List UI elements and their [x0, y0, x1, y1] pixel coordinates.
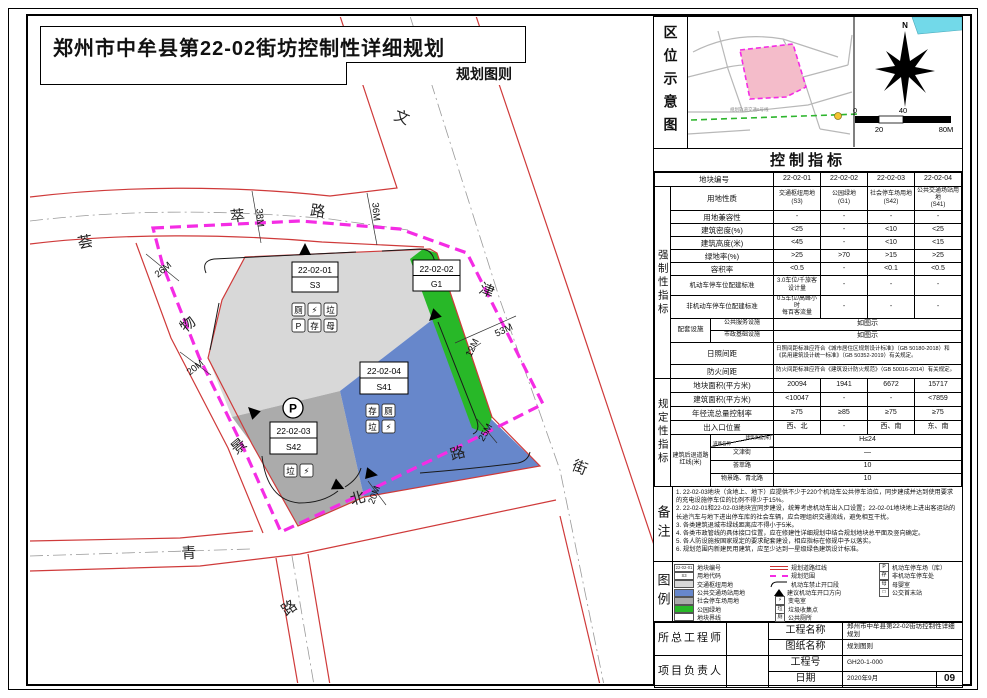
- note-item: 4. 各类市政管线的具体接口位置，应在修建性详细规划中结合规划地块总平面及竖向确…: [676, 530, 959, 538]
- notes-body: 1. 22-02-03地块（含地上、地下）应提供不少于220个机动车公共停车泊位…: [673, 487, 962, 561]
- legend-column: 规划道路红线规划范围机动车禁止开口段建议机动车开口方向⚡变电室垃垃圾收集点厕公共…: [770, 564, 874, 620]
- compass-north-label: N: [902, 21, 908, 30]
- legend-item: 22-02-01地块编号: [674, 564, 770, 572]
- indicator-cell: 出入口位置: [671, 420, 774, 434]
- sheet-number: 09: [937, 671, 963, 687]
- indicator-cell: 社会停车场用地 (S42): [868, 187, 915, 211]
- legend-glyph-icon: 母: [881, 581, 886, 587]
- legend-item: ⚡变电室: [770, 597, 874, 605]
- legend-swatch-mdash-icon: [770, 575, 788, 577]
- indicator-cell: 10: [774, 473, 962, 486]
- chief-engineer-signature: [727, 623, 769, 656]
- site-plan-map: 22-02-01 S3 22-02-02 G1 22-02-04 S41 22-…: [29, 17, 653, 683]
- indicator-cell: 机动车停车位配建标准: [671, 276, 774, 296]
- indicator-cell: -: [868, 392, 915, 406]
- indicator-cell: 规定性指标: [655, 378, 671, 486]
- indicator-cell: -: [868, 296, 915, 319]
- indicator-cell: 防火间距: [671, 364, 774, 378]
- indicator-cell: 地块面积(平方米): [671, 378, 774, 392]
- project-manager-signature: [727, 655, 769, 687]
- facility-icon: 存: [368, 406, 377, 416]
- parcel-id: 22-02-04: [367, 366, 401, 376]
- svg-text:路: 路: [309, 202, 326, 221]
- facility-icon: 垃: [368, 422, 377, 432]
- legend-section: 图例 22-02-01地块编号S3用地代码交通枢纽用地公共交通场站用地社会停车场…: [653, 561, 963, 623]
- indicator-cell: -: [821, 224, 868, 237]
- indicator-cell: 配套设施: [671, 318, 711, 342]
- note-item: 3. 各类建筑退城市绿线距离应不得小于5米。: [676, 522, 959, 530]
- drawing-title-box: 郑州市中牟县第22-02街坊控制性详细规划 规划图则: [40, 26, 526, 85]
- indicator-cell: -: [915, 296, 962, 319]
- svg-text:P: P: [289, 402, 297, 416]
- indicator-cell: 1941: [821, 378, 868, 392]
- project-no-label: 工程号: [769, 655, 843, 671]
- svg-text:街: 街: [570, 457, 590, 478]
- indicator-cell: —: [774, 447, 962, 460]
- indicator-cell: 西、北: [774, 420, 821, 434]
- notes-title: 备注: [654, 487, 673, 561]
- indicator-cell: 日照间距标准应符合《城市居住区规划设计标准》（GB 50180-2018）和《民…: [774, 342, 962, 364]
- indicator-cell: >25: [774, 250, 821, 263]
- svg-text:38M: 38M: [253, 208, 266, 227]
- facility-icon: 存: [310, 321, 319, 331]
- indicator-cell: 22-02-04: [915, 173, 962, 187]
- legend-glyph-icon: 垃: [777, 606, 782, 612]
- indicator-cell: 地块编号: [655, 173, 774, 187]
- indicator-cell: 3.0车位/千旅客 设计量: [774, 276, 821, 296]
- svg-text:40: 40: [899, 106, 907, 115]
- indicator-cell: <45: [774, 237, 821, 250]
- indicator-cell: -: [915, 276, 962, 296]
- legend-swatch-glyph-icon: 厕: [775, 613, 785, 622]
- indicator-cell: 22-02-03: [868, 173, 915, 187]
- facility-icon: 垃: [326, 305, 335, 315]
- legend-swatch-text: 22-02-01: [676, 565, 693, 570]
- svg-text:青: 青: [181, 545, 197, 563]
- facility-icon: 母: [326, 321, 335, 331]
- indicator-cell: >15: [868, 250, 915, 263]
- note-item: 1. 22-02-03地块（含地上、地下）应提供不少于220个机动车公共停车泊位…: [676, 489, 959, 505]
- legend-swatch-fill: [674, 580, 694, 588]
- facility-icon: P: [296, 321, 302, 331]
- indicator-cell: 如图示: [774, 330, 962, 342]
- legend-swatch-idbox-icon: 22-02-01: [674, 564, 694, 572]
- indicator-cell: -: [821, 237, 868, 250]
- indicator-cell: -: [821, 263, 868, 276]
- svg-text:0: 0: [853, 106, 857, 115]
- indicator-cell: 日照间距: [671, 342, 774, 364]
- location-inset-title: 区位示意图: [654, 17, 688, 148]
- facility-icon: ⚡: [312, 305, 318, 315]
- location-inset-map: 规划轨道交通6号线 N 0 40 20 80M: [688, 17, 962, 147]
- svg-text:20: 20: [875, 125, 883, 134]
- indicator-cell: <0.5: [774, 263, 821, 276]
- indicator-cell: 公共交通场站用地 (S41): [915, 187, 962, 211]
- indicator-cell: 公共服务设施: [711, 318, 774, 330]
- legend-swatch-curve-icon: [770, 581, 788, 587]
- indicator-cell: >25: [915, 250, 962, 263]
- indicator-cell: 交通枢纽用地 (S3): [774, 187, 821, 211]
- svg-text:津: 津: [477, 280, 497, 301]
- inset-metro-label: 规划轨道交通6号线: [730, 106, 769, 113]
- legend-body: 22-02-01地块编号S3用地代码交通枢纽用地公共交通场站用地社会停车场用地公…: [673, 562, 963, 622]
- parcel-id: 22-02-02: [419, 264, 453, 274]
- notes-section: 备注 1. 22-02-03地块（含地上、地下）应提供不少于220个机动车公共停…: [653, 486, 963, 562]
- svg-text:36M: 36M: [369, 202, 382, 221]
- sheet-name-label: 图纸名称: [769, 639, 843, 655]
- indicator-cell: -: [821, 392, 868, 406]
- legend-swatch-fill: [674, 605, 694, 613]
- parcel-code: S3: [310, 280, 321, 290]
- indicator-cell: 22-02-02: [821, 173, 868, 187]
- indicator-cell: ≥85: [821, 406, 868, 420]
- indicator-cell: 建筑高度(米): [671, 237, 774, 250]
- indicator-cell: <25: [774, 224, 821, 237]
- svg-text:26M: 26M: [153, 260, 174, 280]
- project-name-value: 郑州市中牟县第22-02街坊控制性详细规划: [843, 623, 963, 640]
- svg-text:萃: 萃: [229, 207, 246, 225]
- project-manager-label: 项目负责人: [655, 655, 727, 687]
- indicator-cell: <10: [868, 237, 915, 250]
- indicator-cell: 公园绿地 (G1): [821, 187, 868, 211]
- indicator-cell: 用地性质: [671, 187, 774, 211]
- indicator-cell: 用地兼容性: [671, 211, 774, 224]
- indicator-cell: 15717: [915, 378, 962, 392]
- indicator-cell: <7859: [915, 392, 962, 406]
- legend-swatch-fill: [674, 597, 694, 605]
- indicator-cell: <25: [915, 224, 962, 237]
- indicator-cell: 建筑高度(米)道路名称: [711, 434, 774, 447]
- indicator-cell: <10: [868, 224, 915, 237]
- legend-label: 公交首末站: [892, 588, 922, 597]
- drawing-subtitle: 规划图则: [346, 62, 526, 85]
- inset-metro-station: [835, 113, 842, 120]
- indicator-cell: ≥75: [774, 406, 821, 420]
- facility-icon: ⚡: [304, 466, 310, 476]
- legend-swatch-tri-icon: [774, 589, 784, 596]
- indicator-cell: 物景路、青北路: [711, 473, 774, 486]
- indicator-cell: 非机动车停车位配建标准: [671, 296, 774, 319]
- legend-item: 垃垃圾收集点: [770, 605, 874, 613]
- compass-rose: [875, 31, 935, 107]
- inset-site: [740, 44, 806, 99]
- indicator-cell: -: [868, 211, 915, 224]
- indicator-cell: 10: [774, 460, 962, 473]
- legend-swatch-dline-icon: [770, 566, 788, 570]
- svg-text:路: 路: [278, 597, 300, 620]
- parcel-code: G1: [431, 279, 443, 289]
- plan-sheet: 22-02-01 S3 22-02-02 G1 22-02-04 S41 22-…: [0, 0, 987, 698]
- indicator-cell: 20094: [774, 378, 821, 392]
- svg-text:80M: 80M: [939, 125, 954, 134]
- indicator-cell: 建筑面积(平方米): [671, 392, 774, 406]
- indicator-cell: 容积率: [671, 263, 774, 276]
- legend-swatch-text: S3: [681, 573, 686, 578]
- legend-title: 图例: [654, 562, 673, 622]
- note-item: 6. 规划范围内新建民用建筑，应至少达到一星级绿色建筑设计标准。: [676, 546, 959, 554]
- right-panel: 区位示意图 规划轨道交通6号线: [653, 16, 963, 686]
- date-label: 日期: [769, 671, 843, 687]
- indicators-title: 控制指标: [653, 148, 963, 173]
- legend-glyph-icon: ⚡: [778, 597, 782, 603]
- sheet-name-value: 规划图则: [843, 639, 963, 655]
- legend-item: 规划道路红线: [770, 564, 874, 572]
- legend-column: P机动车停车场（库）存非机动车停车处母母婴室□公交首末站: [874, 564, 962, 620]
- legend-glyph-icon: □: [882, 589, 885, 595]
- diag-label-bottom: 道路名称: [713, 441, 731, 446]
- indicator-cell: -: [821, 276, 868, 296]
- indicator-cell: 市政基础设施: [711, 330, 774, 342]
- indicator-cell: 年径流总量控制率: [671, 406, 774, 420]
- indicator-cell: -: [915, 211, 962, 224]
- drawing-title: 郑州市中牟县第22-02街坊控制性详细规划: [41, 27, 525, 61]
- inset-water: [912, 17, 962, 34]
- legend-glyph-icon: P: [882, 564, 885, 570]
- scale-bar: 0 40 20 80M: [853, 106, 953, 134]
- title-block: 所总工程师 工程名称 郑州市中牟县第22-02街坊控制性详细规划 图纸名称 规划…: [653, 621, 963, 686]
- indicator-cell: ≥75: [868, 406, 915, 420]
- legend-glyph-icon: 存: [881, 572, 886, 578]
- facility-icon: 厕: [294, 305, 303, 315]
- indicator-cell: >70: [821, 250, 868, 263]
- legend-glyph-icon: 厕: [777, 614, 782, 620]
- parcel-id: 22-02-03: [276, 426, 310, 436]
- parcel-code: S42: [286, 442, 301, 452]
- location-inset-section: 区位示意图 规划轨道交通6号线: [653, 16, 963, 149]
- legend-swatch-glyph-icon: □: [879, 588, 889, 597]
- legend-swatch-fill: [674, 589, 694, 597]
- parcel-id: 22-02-01: [298, 265, 332, 275]
- indicators-table: 地块编号22-02-0122-02-0222-02-0322-02-04强制性指…: [653, 171, 963, 488]
- indicator-cell: 建筑后退道路红线(米): [671, 434, 711, 486]
- indicator-cell: 如图示: [774, 318, 962, 330]
- indicator-cell: -: [868, 276, 915, 296]
- legend-swatch-codebox-icon: S3: [674, 572, 694, 580]
- indicator-cell: 东、南: [915, 420, 962, 434]
- legend-item: 社会停车场用地: [674, 597, 770, 605]
- indicator-cell: 22-02-01: [774, 173, 821, 187]
- chief-engineer-label: 所总工程师: [655, 623, 727, 656]
- indicator-cell: -: [821, 211, 868, 224]
- indicator-cell: <10047: [774, 392, 821, 406]
- project-name-label: 工程名称: [769, 623, 843, 640]
- indicator-cell: <15: [915, 237, 962, 250]
- legend-item: 建议机动车开口方向: [770, 588, 874, 596]
- project-no-value: GH20-1-000: [843, 655, 963, 671]
- diag-label-top: 建筑高度(米): [746, 435, 772, 440]
- indicator-cell: 荟萃路: [711, 460, 774, 473]
- indicator-cell: 绿地率(%): [671, 250, 774, 263]
- indicator-cell: -: [821, 420, 868, 434]
- indicator-cell: -: [774, 211, 821, 224]
- svg-text:20M: 20M: [185, 358, 206, 378]
- legend-swatch-fill: [674, 613, 694, 621]
- svg-text:荟: 荟: [76, 233, 94, 252]
- svg-text:文: 文: [392, 107, 412, 128]
- facility-icon: ⚡: [386, 422, 392, 432]
- indicator-cell: 建筑密度(%): [671, 224, 774, 237]
- indicator-cell: <0.1: [868, 263, 915, 276]
- indicator-cell: 文津街: [711, 447, 774, 460]
- indicator-cell: 防火间距标准应符合《建筑设计防火规范》（GB 50016-2014）有关规定。: [774, 364, 962, 378]
- date-value: 2020年9月: [843, 671, 937, 687]
- indicator-cell: <0.5: [915, 263, 962, 276]
- indicator-cell: H≤24: [774, 434, 962, 447]
- legend-item: 公园绿地: [674, 605, 770, 613]
- parking-circle-icon: P: [283, 398, 303, 418]
- indicator-cell: 0.5车位/高峰小时 每百客流量: [774, 296, 821, 319]
- facility-icon: 厕: [384, 406, 393, 416]
- legend-column: 22-02-01地块编号S3用地代码交通枢纽用地公共交通场站用地社会停车场用地公…: [674, 564, 770, 620]
- note-item: 2. 22-02-01和22-02-03地块宜同步建设，统筹考虑机动车出入口设置…: [676, 505, 959, 521]
- indicator-cell: ≥75: [915, 406, 962, 420]
- indicator-cell: 西、南: [868, 420, 915, 434]
- indicator-cell: 6672: [868, 378, 915, 392]
- legend-item: □公交首末站: [874, 588, 962, 596]
- indicator-cell: 强制性指标: [655, 187, 671, 379]
- parcel-code: S41: [376, 382, 391, 392]
- svg-text:物: 物: [177, 313, 199, 336]
- indicator-cell: -: [821, 296, 868, 319]
- facility-icon: 垃: [286, 466, 295, 476]
